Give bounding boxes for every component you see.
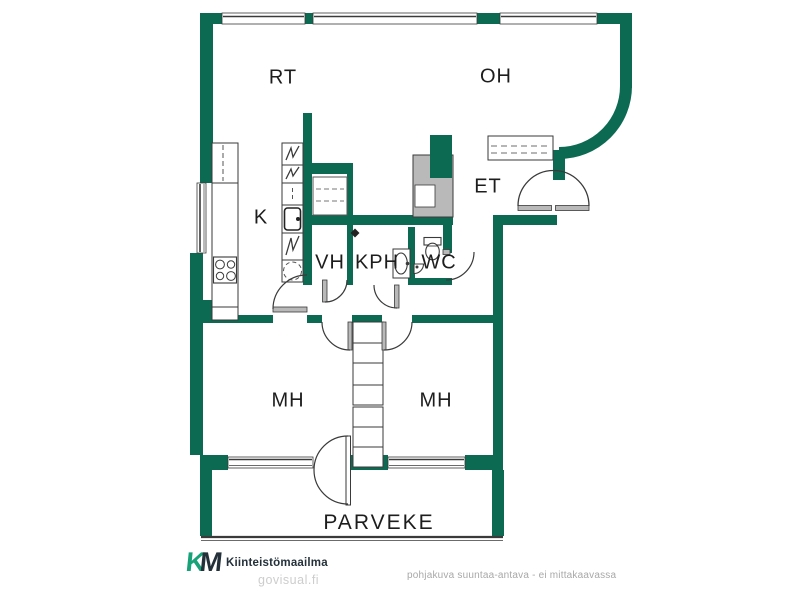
vh-closet xyxy=(313,177,347,215)
wall-bottom-seg1 xyxy=(200,455,228,470)
wall-hall-seg4 xyxy=(412,315,503,323)
window-bottom-left xyxy=(228,457,313,468)
wall-hall-seg2 xyxy=(307,315,322,323)
room-label-mh-right: MH xyxy=(419,390,452,413)
room-label-rt: RT xyxy=(269,67,297,90)
stove-icon xyxy=(214,257,237,283)
room-label-kph: KPH xyxy=(355,252,399,275)
disclaimer-text: pohjakuva suuntaa-antava - ei mittakaava… xyxy=(407,570,616,581)
window-left xyxy=(197,183,206,253)
shaft-wall-overlay xyxy=(430,135,452,178)
et-shelf xyxy=(488,136,553,160)
kph-door xyxy=(374,285,399,308)
km-logo-m-icon: M xyxy=(198,549,223,575)
duct-shaft xyxy=(413,135,453,217)
wall-right-mid xyxy=(493,215,503,465)
wall-top-seg3 xyxy=(477,13,500,24)
wall-bottom-seg3 xyxy=(465,455,503,470)
wall-wc-south xyxy=(415,278,452,285)
watermark-text: govisual.fi xyxy=(258,573,319,587)
mh-left-door xyxy=(322,322,352,350)
floor-plan-page: RT OH K ET VH KPH WC MH MH PARVEKE K M K… xyxy=(0,0,800,600)
room-label-et: ET xyxy=(474,176,502,199)
mh-right-door xyxy=(382,322,412,350)
wall-kitchen xyxy=(303,113,312,285)
wall-left-lower xyxy=(190,253,203,455)
wall-top-seg2 xyxy=(305,13,313,24)
balcony-railing xyxy=(201,537,503,541)
wall-wc-right xyxy=(443,225,452,253)
window-top-left xyxy=(222,13,305,24)
wall-vh-top xyxy=(312,163,353,174)
wall-balcony-right xyxy=(492,470,504,536)
wall-curved xyxy=(559,86,626,153)
vh-door xyxy=(323,280,348,302)
room-label-wc: WC xyxy=(421,252,456,275)
balcony-door xyxy=(314,436,351,505)
wall-balcony-left xyxy=(200,470,212,536)
brand-name: Kiinteistömaailma xyxy=(226,557,328,569)
floor-plan-drawing xyxy=(0,0,800,600)
window-bottom-right xyxy=(388,457,465,468)
room-label-k: K xyxy=(254,207,268,230)
wall-right-upper xyxy=(620,13,632,88)
room-label-vh: VH xyxy=(315,252,345,275)
room-label-parveke: PARVEKE xyxy=(323,511,434,535)
room-label-mh-left: MH xyxy=(271,390,304,413)
window-top-mid xyxy=(313,13,477,24)
wall-left-upper xyxy=(200,13,213,183)
kitchen-counter xyxy=(212,143,238,320)
wardrobe-column xyxy=(353,322,383,467)
window-glazing-lines xyxy=(200,17,596,466)
km-logo: K M Kiinteistömaailma xyxy=(186,549,328,575)
windows xyxy=(197,13,597,468)
room-label-oh: OH xyxy=(480,66,512,89)
kitchen-sink-icon xyxy=(285,208,301,230)
kitchen-cabinet-column xyxy=(282,143,303,282)
shaft-opening xyxy=(415,185,435,207)
window-top-right xyxy=(500,13,597,24)
